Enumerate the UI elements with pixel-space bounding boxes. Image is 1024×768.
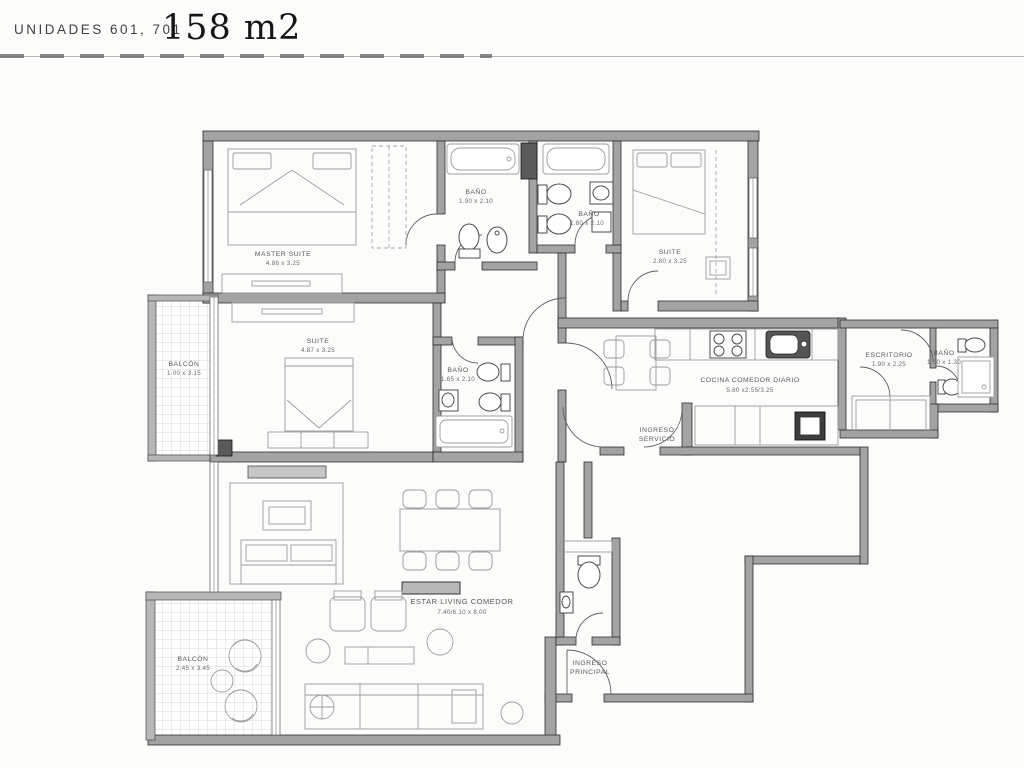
label-ingreso-servicio-2: SERVICIO (639, 436, 675, 443)
master-wardrobe (372, 146, 406, 248)
label-balcon-1: BALCÓN (169, 359, 200, 368)
master-bed (228, 149, 356, 245)
label-bano-servicio: BAÑO (933, 348, 954, 357)
label-balcon-2: BALCÓN (178, 654, 209, 663)
floorplan-page: UNIDADES 601, 701 158 m2 (0, 0, 1024, 768)
label-ingreso-principal-2: PRINCIPAL (570, 669, 610, 676)
dims-escritorio: 1.90 x 2.25 (872, 361, 906, 368)
dims-bano-3: 1.65 x 2.10 (441, 376, 475, 383)
tv-console (263, 501, 311, 530)
toilette-fixtures (560, 541, 612, 613)
label-bano-2: BAÑO (578, 209, 599, 218)
bathroom-service-fixtures (938, 338, 994, 397)
dining-table (400, 490, 500, 570)
stove-icon (710, 331, 746, 358)
kitchen-lower-counter (695, 406, 838, 445)
bidet-icon (538, 214, 571, 234)
toilet-icon (477, 363, 510, 381)
side-table (306, 639, 330, 663)
label-master-suite: MASTER SUITE (255, 251, 311, 258)
coffee-table (345, 647, 414, 664)
label-bano-master: BAÑO (465, 187, 486, 196)
dims-suite-1: 4.87 x 3.25 (301, 347, 335, 354)
round-table (501, 702, 523, 724)
sofa-small (241, 540, 336, 584)
bathtub-icon (447, 144, 519, 174)
dims-suite-2: 2.80 x 3.25 (653, 258, 687, 265)
side-table (427, 629, 453, 655)
floorplan-drawing: MASTER SUITE 4.86 x 3.25 BAÑO 1.90 x 2.1… (0, 0, 1024, 768)
bathtub-icon (543, 144, 609, 174)
dims-balcon-2: 2.45 x 3.45 (176, 665, 210, 672)
shower-icon (958, 357, 994, 397)
label-estar: ESTAR LIVING COMEDOR (410, 597, 513, 606)
kitchen-sink-icon (766, 331, 810, 358)
sink-icon (958, 338, 985, 352)
label-ingreso-principal-1: INGRESO (573, 660, 608, 667)
dims-bano-master: 1.90 x 2.10 (459, 198, 493, 205)
master-dresser (222, 274, 342, 293)
sideboard (402, 582, 460, 594)
kitchen-table (604, 336, 670, 390)
dims-bano-servicio: 1.50 x 1.30 (927, 359, 961, 366)
dims-master-suite: 4.86 x 3.25 (266, 260, 300, 267)
label-bano-3: BAÑO (447, 365, 468, 374)
wall-cabinet (248, 466, 326, 478)
label-suite-2: SUITE (659, 249, 682, 256)
label-cocina: COCINA COMEDOR DIARIO (700, 377, 799, 384)
bidet-icon (487, 227, 507, 253)
balcony-left (154, 299, 212, 455)
label-escritorio: ESCRITORIO (865, 352, 912, 359)
bidet-icon (479, 393, 510, 411)
sink-icon (439, 390, 458, 411)
bathtub-icon (436, 416, 512, 447)
label-ingreso-servicio-1: INGRESO (640, 427, 675, 434)
dims-cocina: 5.80 x2.55/3.25 (726, 387, 773, 394)
dims-bano-2: 1.80 x 2.10 (570, 220, 604, 227)
toilet-icon (578, 556, 600, 588)
dims-estar: 7.40/6.10 x 8.00 (437, 609, 486, 616)
sofa-large (305, 684, 483, 729)
armchairs (330, 591, 406, 631)
suite1-dresser (232, 303, 354, 322)
suite1-bed (268, 358, 368, 448)
label-suite-1: SUITE (307, 338, 330, 345)
suite2-nightstand (706, 257, 730, 279)
sink-icon (560, 592, 573, 613)
toilet-icon (538, 184, 571, 204)
dims-balcon-1: 1.00 x 3.15 (167, 370, 201, 377)
toilet-icon (938, 379, 961, 395)
toilet-icon (459, 224, 480, 258)
